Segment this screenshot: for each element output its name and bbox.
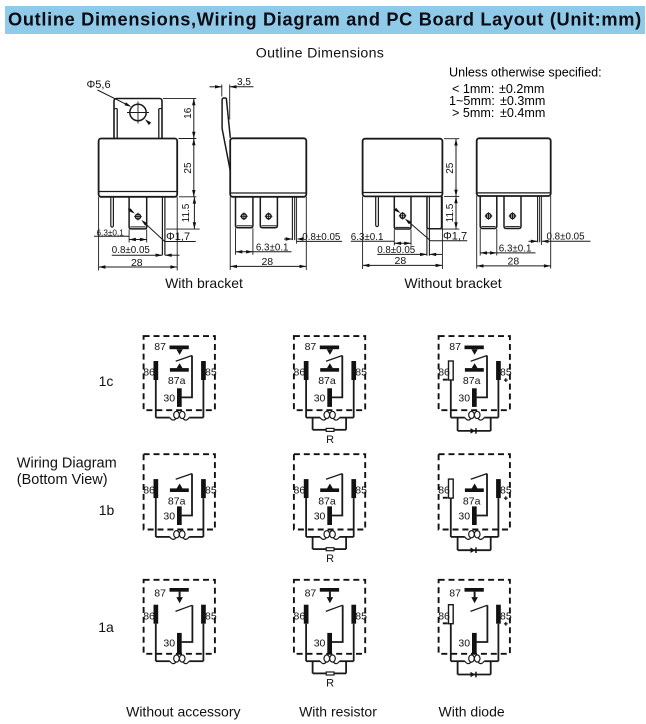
- svg-text:87: 87: [449, 588, 461, 600]
- svg-text:3,5: 3,5: [237, 77, 251, 88]
- svg-text:With bracket: With bracket: [165, 275, 243, 291]
- svg-text:85: 85: [500, 485, 512, 497]
- svg-text:86: 86: [143, 610, 155, 622]
- svg-text:87a: 87a: [168, 375, 186, 387]
- svg-text:25: 25: [445, 162, 456, 174]
- svg-text:30: 30: [163, 393, 175, 405]
- svg-text:30: 30: [458, 393, 470, 405]
- svg-text:R: R: [326, 677, 334, 689]
- svg-text:85: 85: [500, 367, 512, 379]
- svg-text:1b: 1b: [99, 502, 115, 518]
- svg-text:86: 86: [294, 485, 306, 497]
- svg-text:25: 25: [183, 162, 194, 174]
- svg-text:R: R: [326, 434, 334, 446]
- svg-text:85: 85: [500, 610, 512, 622]
- svg-text:86: 86: [438, 367, 450, 379]
- svg-text:Without bracket: Without bracket: [404, 275, 501, 291]
- svg-text:85: 85: [355, 610, 367, 622]
- svg-text:28: 28: [395, 255, 407, 267]
- svg-text:16: 16: [183, 107, 194, 119]
- svg-text:> 5mm:: > 5mm:: [452, 106, 494, 120]
- svg-text:0.8±0.05: 0.8±0.05: [112, 245, 151, 256]
- svg-text:87a: 87a: [463, 495, 481, 507]
- svg-text:0.8±0.05: 0.8±0.05: [547, 231, 586, 242]
- svg-text:86: 86: [438, 610, 450, 622]
- svg-text:87a: 87a: [168, 495, 186, 507]
- svg-text:85: 85: [205, 367, 217, 379]
- svg-text:87: 87: [305, 341, 317, 353]
- svg-text:85: 85: [205, 485, 217, 497]
- svg-text:86: 86: [143, 485, 155, 497]
- svg-text:Wiring Diagram: Wiring Diagram: [17, 455, 117, 471]
- svg-text:87a: 87a: [318, 375, 336, 387]
- svg-text:87: 87: [154, 341, 166, 353]
- svg-text:(Bottom View): (Bottom View): [17, 472, 108, 488]
- svg-text:30: 30: [314, 393, 326, 405]
- svg-text:87: 87: [305, 588, 317, 600]
- svg-text:Outline Dimensions,Wiring Diag: Outline Dimensions,Wiring Diagram and PC…: [8, 9, 642, 29]
- svg-text:30: 30: [163, 638, 175, 650]
- svg-text:30: 30: [314, 638, 326, 650]
- svg-text:30: 30: [458, 638, 470, 650]
- svg-text:With diode: With diode: [439, 704, 505, 720]
- svg-text:6.3±0.1: 6.3±0.1: [499, 243, 532, 254]
- svg-text:85: 85: [355, 485, 367, 497]
- svg-text:Unless otherwise specified:: Unless otherwise specified:: [449, 66, 602, 80]
- svg-text:87: 87: [154, 588, 166, 600]
- svg-text:28: 28: [131, 257, 143, 269]
- svg-text:11.5: 11.5: [445, 203, 456, 222]
- svg-text:30: 30: [163, 511, 175, 523]
- svg-text:86: 86: [294, 367, 306, 379]
- svg-text:Outline Dimensions: Outline Dimensions: [256, 45, 384, 61]
- svg-text:87: 87: [449, 341, 461, 353]
- svg-text:±0.4mm: ±0.4mm: [500, 106, 545, 120]
- svg-text:11.5: 11.5: [181, 203, 192, 222]
- svg-text:1a: 1a: [98, 619, 114, 635]
- svg-text:86: 86: [438, 485, 450, 497]
- svg-text:Without accessory: Without accessory: [126, 704, 240, 720]
- svg-text:85: 85: [355, 367, 367, 379]
- svg-text:1c: 1c: [99, 373, 114, 389]
- svg-text:30: 30: [314, 511, 326, 523]
- svg-text:6.3±0.1: 6.3±0.1: [256, 242, 289, 253]
- svg-text:30: 30: [458, 511, 470, 523]
- svg-text:87a: 87a: [463, 375, 481, 387]
- svg-text:R: R: [326, 553, 334, 565]
- svg-text:86: 86: [294, 610, 306, 622]
- svg-text:87a: 87a: [318, 495, 336, 507]
- svg-text:Φ5,6: Φ5,6: [87, 79, 111, 91]
- svg-text:With resistor: With resistor: [299, 704, 377, 720]
- svg-text:86: 86: [143, 367, 155, 379]
- svg-text:85: 85: [205, 610, 217, 622]
- svg-text:28: 28: [508, 255, 520, 267]
- svg-text:28: 28: [261, 256, 273, 268]
